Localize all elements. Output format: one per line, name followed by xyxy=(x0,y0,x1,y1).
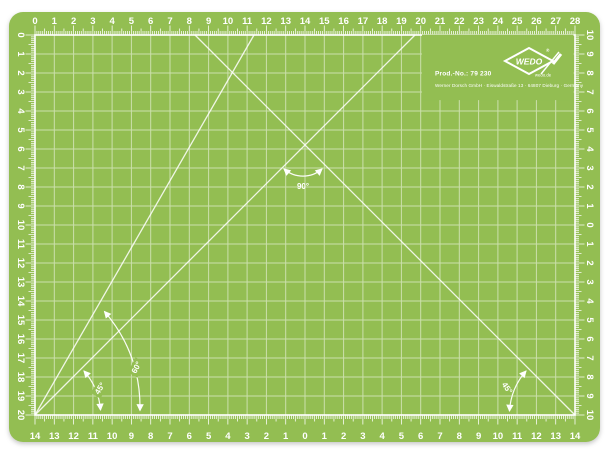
bottom-ruler-number: 14 xyxy=(30,431,41,442)
left-ruler-number: 3 xyxy=(15,89,26,94)
left-ruler-number: 13 xyxy=(15,277,26,288)
right-ruler-number: 0 xyxy=(584,222,595,227)
bottom-ruler-number: 5 xyxy=(206,431,212,442)
top-ruler-number: 7 xyxy=(167,16,172,27)
bottom-ruler-number: 3 xyxy=(360,431,365,442)
top-ruler-number: 18 xyxy=(377,16,388,27)
bottom-ruler-number: 3 xyxy=(244,431,249,442)
left-ruler-number: 5 xyxy=(15,127,26,133)
top-ruler-number: 9 xyxy=(206,16,211,27)
left-ruler-number: 17 xyxy=(15,353,26,364)
top-ruler-number: 8 xyxy=(187,16,192,27)
bottom-ruler-number: 13 xyxy=(49,431,60,442)
left-ruler-number: 6 xyxy=(15,146,26,151)
left-ruler-number: 20 xyxy=(15,410,26,421)
left-ruler-number: 14 xyxy=(15,296,26,307)
top-ruler-number: 17 xyxy=(358,16,369,27)
top-ruler-number: 14 xyxy=(300,16,311,27)
top-ruler-number: 20 xyxy=(415,16,426,27)
left-ruler-number: 9 xyxy=(15,203,26,208)
company-address: Werner Dorsch GmbH · Eiswaldstraße 13 · … xyxy=(435,83,584,88)
top-ruler-number: 11 xyxy=(242,16,253,27)
bottom-ruler-number: 11 xyxy=(88,431,99,442)
left-ruler-number: 16 xyxy=(15,334,26,345)
top-ruler-number: 24 xyxy=(493,16,504,27)
right-ruler-number: 10 xyxy=(584,410,595,421)
bottom-ruler-number: 5 xyxy=(399,431,405,442)
bottom-ruler-number: 9 xyxy=(129,431,134,442)
photo-stage: 45° 60° 90° 45° 012345678910111213141516… xyxy=(0,0,608,450)
logo-wordmark: WEDO xyxy=(516,57,543,67)
right-ruler-number: 8 xyxy=(584,70,595,75)
top-ruler-number: 10 xyxy=(223,16,234,27)
left-ruler-number: 8 xyxy=(15,184,26,189)
right-ruler-number: 9 xyxy=(584,51,595,56)
top-ruler-number: 21 xyxy=(435,16,446,27)
right-ruler-number: 4 xyxy=(584,146,595,152)
top-ruler-number: 23 xyxy=(473,16,484,27)
top-ruler-number: 25 xyxy=(512,16,523,27)
right-ruler-number: 10 xyxy=(584,30,595,41)
top-ruler-number: 19 xyxy=(396,16,407,27)
top-ruler-number: 13 xyxy=(280,16,291,27)
left-ruler-number: 15 xyxy=(15,315,26,326)
bottom-ruler-number: 7 xyxy=(167,431,172,442)
angle-label-90-apex: 90° xyxy=(297,182,309,191)
bottom-ruler-number: 2 xyxy=(341,431,346,442)
left-ruler-number: 7 xyxy=(15,165,26,170)
top-ruler-number: 27 xyxy=(550,16,561,27)
right-ruler-number: 5 xyxy=(584,317,595,323)
left-ruler-number: 1 xyxy=(15,51,26,57)
bottom-ruler-number: 1 xyxy=(283,431,289,442)
top-ruler-number: 6 xyxy=(148,16,153,27)
right-ruler-number: 7 xyxy=(584,355,595,360)
left-ruler-number: 18 xyxy=(15,372,26,383)
left-ruler-number: 0 xyxy=(15,32,26,37)
left-ruler-number: 19 xyxy=(15,391,26,402)
right-ruler-ticks xyxy=(576,35,585,415)
bottom-ruler-number: 10 xyxy=(493,431,504,442)
website-text: wedo.de xyxy=(535,73,552,78)
bottom-ruler-number: 13 xyxy=(550,431,561,442)
bottom-ruler-number: 0 xyxy=(302,431,307,442)
right-ruler-number: 2 xyxy=(584,184,595,189)
bottom-ruler-number: 8 xyxy=(148,431,153,442)
left-ruler-number: 10 xyxy=(15,220,26,231)
bottom-ruler-number: 6 xyxy=(187,431,192,442)
top-ruler-number: 5 xyxy=(129,16,135,27)
bottom-ruler-number: 6 xyxy=(418,431,423,442)
top-ruler-number: 15 xyxy=(319,16,330,27)
bottom-ruler-number: 11 xyxy=(512,431,523,442)
top-ruler-number: 12 xyxy=(261,16,272,27)
right-ruler-number: 4 xyxy=(584,298,595,304)
bottom-ruler-number: 2 xyxy=(264,431,269,442)
top-ruler-number: 28 xyxy=(570,16,581,27)
cutting-mat: 45° 60° 90° 45° 012345678910111213141516… xyxy=(0,0,608,450)
right-ruler-number: 9 xyxy=(584,393,595,398)
left-ruler-number: 11 xyxy=(15,239,26,250)
right-ruler-number: 1 xyxy=(584,203,595,209)
right-ruler-number: 6 xyxy=(584,336,595,341)
left-ruler-number: 12 xyxy=(15,258,26,269)
right-ruler-number: 2 xyxy=(584,260,595,265)
top-ruler-number: 4 xyxy=(109,16,115,27)
branding-area xyxy=(422,35,574,101)
bottom-ruler-number: 7 xyxy=(437,431,442,442)
bottom-ruler-number: 8 xyxy=(457,431,462,442)
right-ruler-number: 5 xyxy=(584,127,595,133)
bottom-ruler-number: 1 xyxy=(322,431,328,442)
right-ruler-number: 1 xyxy=(584,241,595,247)
right-ruler-number: 8 xyxy=(584,374,595,379)
top-ruler-number: 2 xyxy=(71,16,76,27)
right-ruler-number: 6 xyxy=(584,108,595,113)
bottom-ruler-number: 4 xyxy=(225,431,231,442)
top-ruler-number: 26 xyxy=(531,16,542,27)
right-ruler-number: 3 xyxy=(584,165,595,170)
bottom-ruler-number: 12 xyxy=(68,431,79,442)
bottom-ruler-number: 4 xyxy=(379,431,385,442)
top-ruler-number: 16 xyxy=(338,16,349,27)
bottom-ruler-number: 14 xyxy=(570,431,581,442)
bottom-ruler-number: 10 xyxy=(107,431,118,442)
top-ruler-number: 3 xyxy=(90,16,95,27)
left-ruler-number: 2 xyxy=(15,70,26,75)
product-number: Prod.-No.: 79 230 xyxy=(435,71,492,78)
bottom-ruler-number: 12 xyxy=(531,431,542,442)
right-ruler-number: 7 xyxy=(584,89,595,94)
top-ruler-number: 1 xyxy=(52,16,58,27)
bottom-ruler-number: 9 xyxy=(476,431,481,442)
right-ruler-number: 3 xyxy=(584,279,595,284)
top-ruler-number: 0 xyxy=(32,16,37,27)
top-ruler-number: 22 xyxy=(454,16,465,27)
left-ruler-number: 4 xyxy=(15,108,26,114)
